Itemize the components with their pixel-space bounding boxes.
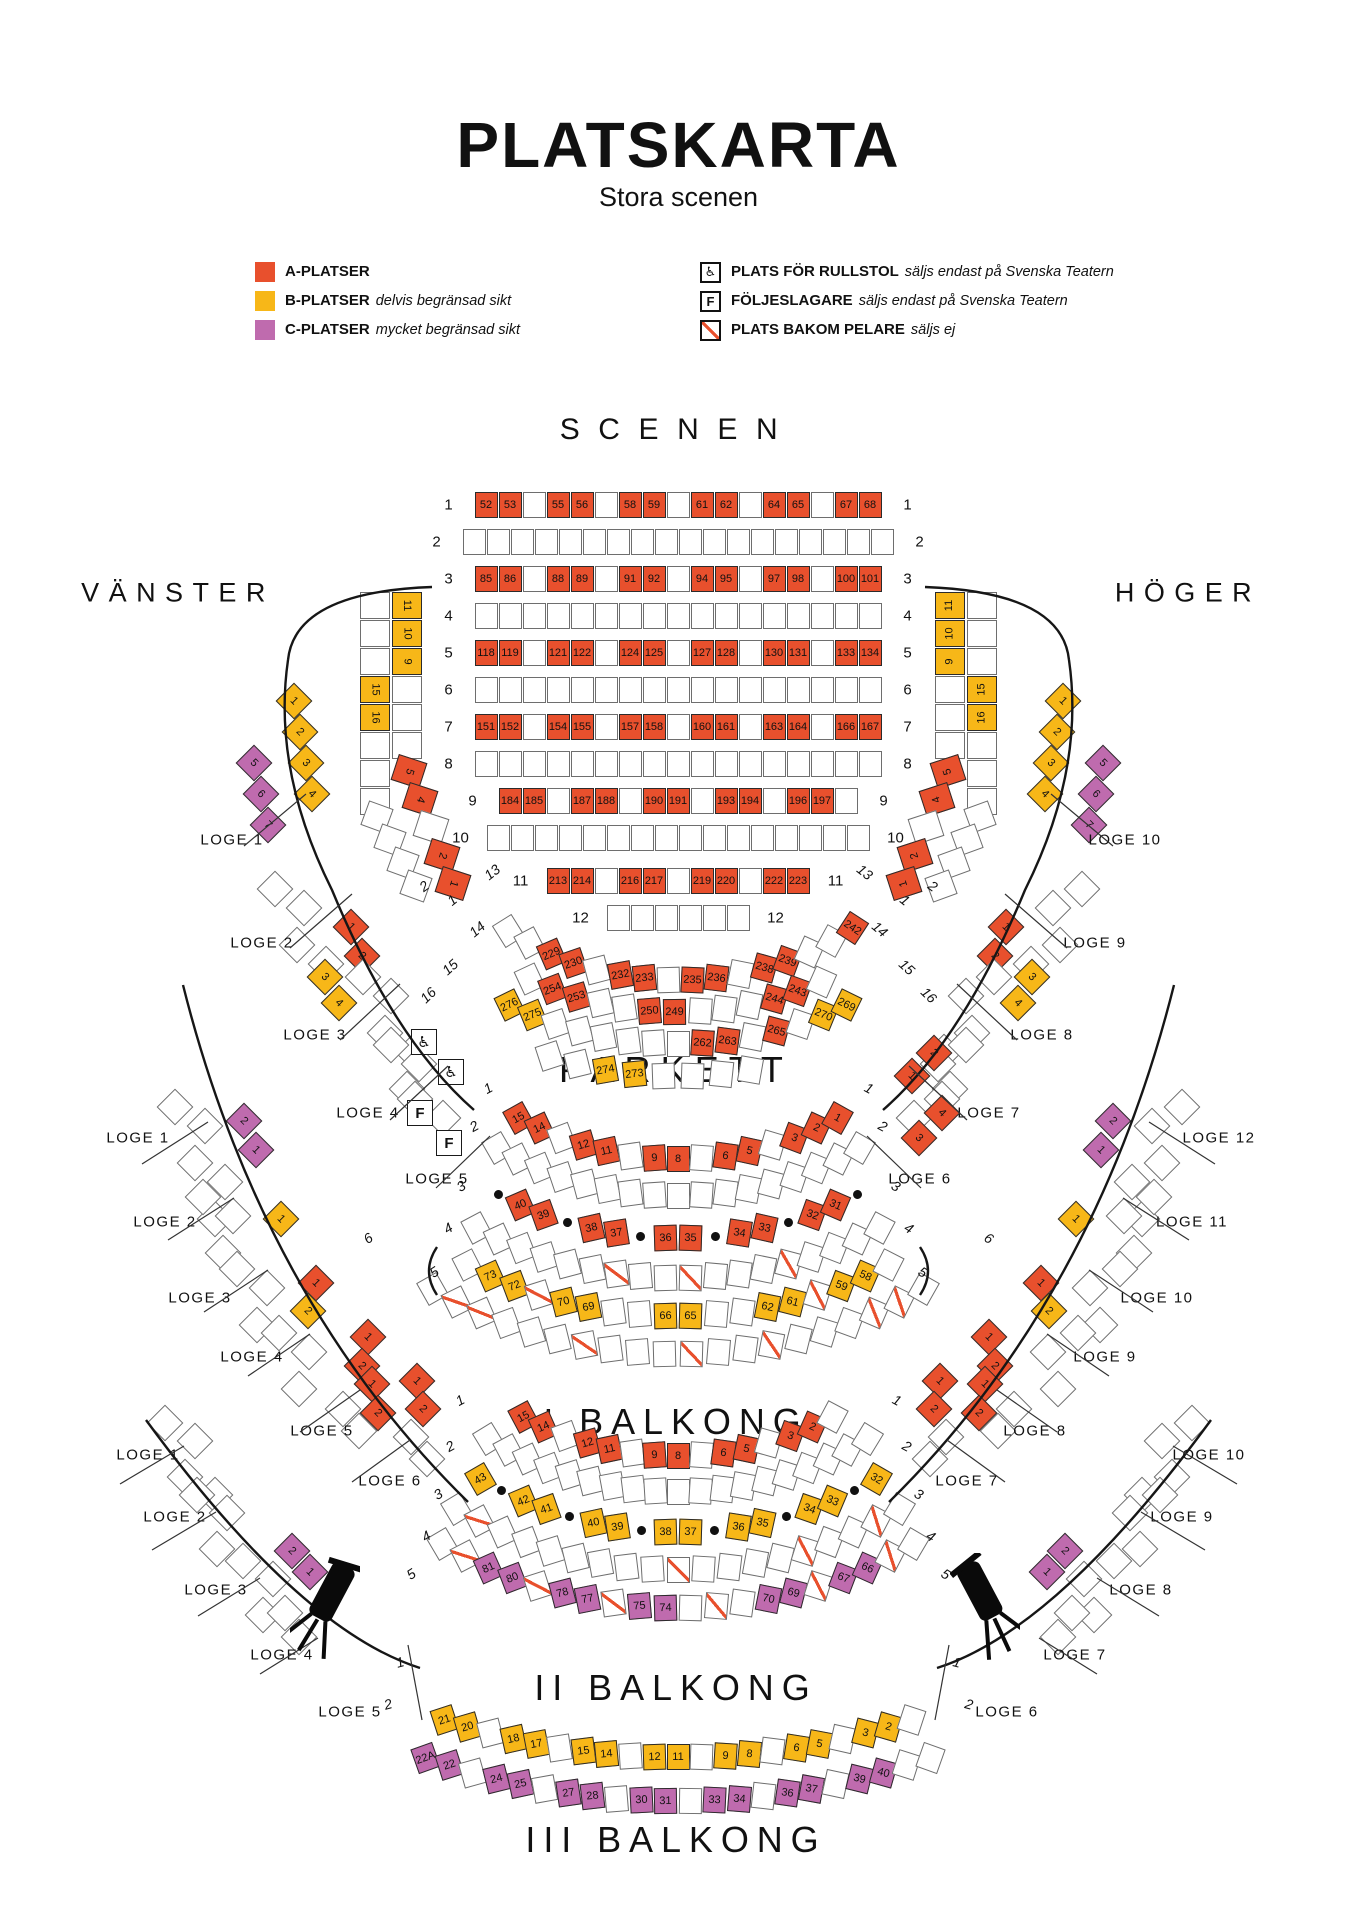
seat-118[interactable]: 118 xyxy=(475,640,498,666)
seat-61[interactable]: 61 xyxy=(691,492,714,518)
seat-16[interactable]: 16 xyxy=(967,704,997,731)
seat-unnumbered[interactable] xyxy=(631,905,654,931)
seat-unnumbered[interactable] xyxy=(643,603,666,629)
seat-100[interactable]: 100 xyxy=(835,566,858,592)
seat-unnumbered[interactable] xyxy=(896,1704,926,1736)
seat-unnumbered[interactable] xyxy=(1174,1405,1211,1442)
seat-125[interactable]: 125 xyxy=(643,640,666,666)
seat-unnumbered[interactable] xyxy=(935,676,965,703)
seat-273[interactable]: 273 xyxy=(622,1060,648,1088)
seat-unnumbered[interactable] xyxy=(703,825,726,851)
seat-unnumbered[interactable] xyxy=(360,592,390,619)
seat-unnumbered[interactable] xyxy=(546,1733,573,1762)
seat-2[interactable]: 2 xyxy=(1039,714,1076,751)
seat-32[interactable]: 32 xyxy=(860,1462,893,1496)
seat-unnumbered[interactable] xyxy=(679,825,702,851)
seat-unnumbered[interactable] xyxy=(655,529,678,555)
seat-33[interactable]: 33 xyxy=(703,1787,727,1814)
seat-86[interactable]: 86 xyxy=(499,566,522,592)
seat-197[interactable]: 197 xyxy=(811,788,834,814)
seat-157[interactable]: 157 xyxy=(619,714,642,740)
seat-11[interactable]: 11 xyxy=(935,592,965,619)
seat-1[interactable]: 1 xyxy=(350,1319,387,1356)
seat-unnumbered[interactable] xyxy=(737,1055,764,1085)
seat-unnumbered[interactable] xyxy=(1040,1371,1077,1408)
seat-unnumbered[interactable] xyxy=(667,566,690,592)
seat-65[interactable]: 65 xyxy=(679,1302,703,1329)
seat-31[interactable]: 31 xyxy=(654,1788,677,1814)
seat-unnumbered[interactable] xyxy=(667,1479,690,1505)
seat-unnumbered[interactable] xyxy=(784,1324,813,1355)
seat-34[interactable]: 34 xyxy=(727,1785,752,1813)
seat-128[interactable]: 128 xyxy=(715,640,738,666)
seat-1[interactable]: 1 xyxy=(276,683,313,720)
seat-6[interactable]: 6 xyxy=(243,776,280,813)
seat-unnumbered[interactable] xyxy=(976,959,1013,996)
seat-unnumbered[interactable] xyxy=(681,1062,705,1089)
seat-58[interactable]: 58 xyxy=(619,492,642,518)
seat-131[interactable]: 131 xyxy=(787,640,810,666)
seat-behind-pillar[interactable] xyxy=(603,1259,629,1288)
seat-unnumbered[interactable] xyxy=(835,788,858,814)
seat-unnumbered[interactable] xyxy=(667,492,690,518)
seat-unnumbered[interactable] xyxy=(578,1254,606,1284)
seat-11[interactable]: 11 xyxy=(392,592,422,619)
seat-67[interactable]: 67 xyxy=(828,1561,859,1593)
seat-unnumbered[interactable] xyxy=(360,648,390,675)
seat-unnumbered[interactable] xyxy=(595,868,618,894)
seat-219[interactable]: 219 xyxy=(691,868,714,894)
seat-unnumbered[interactable] xyxy=(811,751,834,777)
seat-unnumbered[interactable] xyxy=(619,751,642,777)
seat-unnumbered[interactable] xyxy=(667,751,690,777)
seat-11[interactable]: 11 xyxy=(595,1434,623,1464)
seat-unnumbered[interactable] xyxy=(859,751,882,777)
seat-unnumbered[interactable] xyxy=(571,677,594,703)
seat-unnumbered[interactable] xyxy=(360,732,390,759)
seat-24[interactable]: 24 xyxy=(482,1763,511,1794)
seat-unnumbered[interactable] xyxy=(1066,1561,1103,1598)
seat-unnumbered[interactable] xyxy=(604,1785,629,1813)
seat-unnumbered[interactable] xyxy=(750,1254,778,1284)
seat-unnumbered[interactable] xyxy=(463,529,486,555)
seat-unnumbered[interactable] xyxy=(775,529,798,555)
seat-unnumbered[interactable] xyxy=(345,959,382,996)
seat-unnumbered[interactable] xyxy=(702,1262,727,1290)
seat-unnumbered[interactable] xyxy=(595,566,618,592)
seat-unnumbered[interactable] xyxy=(641,1029,666,1056)
seat-unnumbered[interactable] xyxy=(595,677,618,703)
seat-unnumbered[interactable] xyxy=(177,1423,214,1460)
seat-behind-pillar[interactable] xyxy=(522,1570,552,1602)
seat-unnumbered[interactable] xyxy=(667,603,690,629)
seat-unnumbered[interactable] xyxy=(715,751,738,777)
seat-unnumbered[interactable] xyxy=(811,714,834,740)
seat-98[interactable]: 98 xyxy=(787,566,810,592)
seat-unnumbered[interactable] xyxy=(727,905,750,931)
seat-1[interactable]: 1 xyxy=(971,1319,1008,1356)
seat-unnumbered[interactable] xyxy=(598,1335,624,1364)
seat-34[interactable]: 34 xyxy=(727,1218,754,1247)
seat-6[interactable]: 6 xyxy=(783,1733,810,1762)
seat-unnumbered[interactable] xyxy=(847,529,870,555)
seat-151[interactable]: 151 xyxy=(475,714,498,740)
seat-unnumbered[interactable] xyxy=(534,1040,564,1072)
seat-unnumbered[interactable] xyxy=(640,1556,665,1583)
seat-unnumbered[interactable] xyxy=(487,529,510,555)
seat-75[interactable]: 75 xyxy=(626,1592,651,1620)
seat-95[interactable]: 95 xyxy=(715,566,738,592)
seat-unnumbered[interactable] xyxy=(967,592,997,619)
seat-53[interactable]: 53 xyxy=(499,492,522,518)
seat-unnumbered[interactable] xyxy=(1164,1089,1201,1126)
seat-unnumbered[interactable] xyxy=(618,1742,643,1769)
seat-unnumbered[interactable] xyxy=(967,760,997,787)
seat-unnumbered[interactable] xyxy=(583,529,606,555)
seat-unnumbered[interactable] xyxy=(703,529,726,555)
seat-152[interactable]: 152 xyxy=(499,714,522,740)
seat-133[interactable]: 133 xyxy=(835,640,858,666)
seat-unnumbered[interactable] xyxy=(688,1478,713,1505)
seat-unnumbered[interactable] xyxy=(523,677,546,703)
seat-39[interactable]: 39 xyxy=(604,1513,631,1542)
seat-78[interactable]: 78 xyxy=(548,1578,577,1609)
seat-unnumbered[interactable] xyxy=(617,1141,644,1170)
seat-unnumbered[interactable] xyxy=(571,603,594,629)
seat-unnumbered[interactable] xyxy=(691,677,714,703)
seat-unnumbered[interactable] xyxy=(706,1338,731,1366)
seat-unnumbered[interactable] xyxy=(967,620,997,647)
seat-5[interactable]: 5 xyxy=(1085,745,1122,782)
seat-119[interactable]: 119 xyxy=(499,640,522,666)
seat-unnumbered[interactable] xyxy=(835,1307,866,1339)
seat-222[interactable]: 222 xyxy=(763,868,786,894)
seat-companion[interactable]: F xyxy=(407,1100,433,1126)
seat-1[interactable]: 1 xyxy=(1045,683,1082,720)
seat-unnumbered[interactable] xyxy=(644,1478,669,1505)
seat-unnumbered[interactable] xyxy=(643,751,666,777)
seat-unnumbered[interactable] xyxy=(1030,1334,1067,1371)
seat-unnumbered[interactable] xyxy=(763,603,786,629)
seat-unnumbered[interactable] xyxy=(547,751,570,777)
seat-30[interactable]: 30 xyxy=(629,1787,653,1814)
seat-11[interactable]: 11 xyxy=(667,1744,690,1770)
seat-66[interactable]: 66 xyxy=(653,1302,677,1329)
seat-unnumbered[interactable] xyxy=(499,677,522,703)
seat-249[interactable]: 249 xyxy=(663,999,686,1025)
seat-15[interactable]: 15 xyxy=(570,1737,596,1766)
seat-unnumbered[interactable] xyxy=(1064,871,1101,908)
seat-1[interactable]: 1 xyxy=(1058,1201,1095,1238)
seat-unnumbered[interactable] xyxy=(799,529,822,555)
seat-unnumbered[interactable] xyxy=(511,529,534,555)
seat-unnumbered[interactable] xyxy=(618,1179,644,1208)
seat-6[interactable]: 6 xyxy=(712,1141,739,1170)
seat-unnumbered[interactable] xyxy=(736,990,764,1020)
seat-184[interactable]: 184 xyxy=(499,788,522,814)
seat-unnumbered[interactable] xyxy=(667,677,690,703)
seat-unnumbered[interactable] xyxy=(871,529,894,555)
seat-88[interactable]: 88 xyxy=(547,566,570,592)
seat-274[interactable]: 274 xyxy=(592,1055,619,1085)
seat-unnumbered[interactable] xyxy=(691,788,714,814)
seat-97[interactable]: 97 xyxy=(763,566,786,592)
seat-2[interactable]: 2 xyxy=(282,714,319,751)
seat-unnumbered[interactable] xyxy=(157,1089,194,1126)
seat-232[interactable]: 232 xyxy=(607,960,634,990)
seat-behind-pillar[interactable] xyxy=(704,1592,729,1620)
seat-8[interactable]: 8 xyxy=(667,1443,690,1469)
seat-unnumbered[interactable] xyxy=(587,1548,614,1578)
seat-17[interactable]: 17 xyxy=(523,1729,550,1759)
seat-unnumbered[interactable] xyxy=(499,603,522,629)
seat-85[interactable]: 85 xyxy=(475,566,498,592)
seat-37[interactable]: 37 xyxy=(798,1774,825,1804)
seat-unnumbered[interactable] xyxy=(667,714,690,740)
seat-unnumbered[interactable] xyxy=(751,529,774,555)
seat-38[interactable]: 38 xyxy=(654,1518,678,1545)
seat-16[interactable]: 16 xyxy=(360,704,390,731)
seat-unnumbered[interactable] xyxy=(653,1341,677,1368)
seat-unnumbered[interactable] xyxy=(739,603,762,629)
seat-8[interactable]: 8 xyxy=(667,1146,690,1172)
seat-233[interactable]: 233 xyxy=(632,964,658,992)
seat-unnumbered[interactable] xyxy=(805,965,837,998)
seat-unnumbered[interactable] xyxy=(499,751,522,777)
seat-unnumbered[interactable] xyxy=(360,620,390,647)
seat-unnumbered[interactable] xyxy=(187,1108,224,1145)
seat-unnumbered[interactable] xyxy=(627,1300,652,1328)
seat-41[interactable]: 41 xyxy=(531,1493,561,1525)
seat-5[interactable]: 5 xyxy=(930,754,967,789)
seat-unnumbered[interactable] xyxy=(535,529,558,555)
seat-unnumbered[interactable] xyxy=(799,825,822,851)
seat-unnumbered[interactable] xyxy=(535,825,558,851)
seat-unnumbered[interactable] xyxy=(563,1048,592,1079)
seat-10[interactable]: 10 xyxy=(935,620,965,647)
seat-37[interactable]: 37 xyxy=(678,1518,702,1545)
seat-5[interactable]: 5 xyxy=(236,745,273,782)
seat-262[interactable]: 262 xyxy=(691,1029,716,1056)
seat-unnumbered[interactable] xyxy=(559,529,582,555)
seat-unnumbered[interactable] xyxy=(523,640,546,666)
seat-behind-pillar[interactable] xyxy=(678,1264,702,1291)
seat-190[interactable]: 190 xyxy=(643,788,666,814)
seat-1[interactable]: 1 xyxy=(263,1201,300,1238)
seat-unnumbered[interactable] xyxy=(689,1181,714,1208)
seat-14[interactable]: 14 xyxy=(594,1740,619,1768)
seat-134[interactable]: 134 xyxy=(859,640,882,666)
seat-52[interactable]: 52 xyxy=(475,492,498,518)
seat-unnumbered[interactable] xyxy=(291,1334,328,1371)
seat-unnumbered[interactable] xyxy=(811,566,834,592)
seat-28[interactable]: 28 xyxy=(580,1782,606,1810)
seat-unnumbered[interactable] xyxy=(715,603,738,629)
seat-unnumbered[interactable] xyxy=(147,1405,184,1442)
seat-235[interactable]: 235 xyxy=(681,966,705,993)
seat-unnumbered[interactable] xyxy=(523,492,546,518)
seat-unnumbered[interactable] xyxy=(475,603,498,629)
seat-unnumbered[interactable] xyxy=(655,905,678,931)
seat-220[interactable]: 220 xyxy=(715,868,738,894)
seat-35[interactable]: 35 xyxy=(749,1508,777,1538)
seat-unnumbered[interactable] xyxy=(595,603,618,629)
seat-2[interactable]: 2 xyxy=(290,1293,327,1330)
seat-188[interactable]: 188 xyxy=(595,788,618,814)
seat-unnumbered[interactable] xyxy=(811,492,834,518)
seat-62[interactable]: 62 xyxy=(715,492,738,518)
seat-55[interactable]: 55 xyxy=(547,492,570,518)
seat-unnumbered[interactable] xyxy=(730,1589,756,1618)
seat-unnumbered[interactable] xyxy=(615,1026,641,1055)
seat-wheelchair[interactable]: ♿ xyxy=(438,1059,464,1085)
seat-2[interactable]: 2 xyxy=(1031,1293,1068,1330)
seat-193[interactable]: 193 xyxy=(715,788,738,814)
seat-3[interactable]: 3 xyxy=(1033,745,1070,782)
seat-unnumbered[interactable] xyxy=(847,825,870,851)
seat-213[interactable]: 213 xyxy=(547,868,570,894)
seat-unnumbered[interactable] xyxy=(511,825,534,851)
seat-unnumbered[interactable] xyxy=(691,751,714,777)
seat-unnumbered[interactable] xyxy=(583,825,606,851)
seat-unnumbered[interactable] xyxy=(590,1022,618,1052)
seat-67[interactable]: 67 xyxy=(835,492,858,518)
seat-77[interactable]: 77 xyxy=(574,1584,602,1614)
seat-124[interactable]: 124 xyxy=(619,640,642,666)
seat-unnumbered[interactable] xyxy=(763,751,786,777)
seat-unnumbered[interactable] xyxy=(652,1062,676,1089)
seat-25[interactable]: 25 xyxy=(506,1769,534,1799)
seat-unnumbered[interactable] xyxy=(692,1556,717,1583)
seat-36[interactable]: 36 xyxy=(654,1224,678,1251)
seat-unnumbered[interactable] xyxy=(908,810,945,845)
seat-unnumbered[interactable] xyxy=(475,751,498,777)
seat-unnumbered[interactable] xyxy=(571,751,594,777)
seat-unnumbered[interactable] xyxy=(607,825,630,851)
seat-39[interactable]: 39 xyxy=(529,1198,559,1230)
seat-127[interactable]: 127 xyxy=(691,640,714,666)
seat-unnumbered[interactable] xyxy=(727,825,750,851)
seat-unnumbered[interactable] xyxy=(835,677,858,703)
seat-8[interactable]: 8 xyxy=(736,1740,761,1768)
seat-217[interactable]: 217 xyxy=(643,868,666,894)
seat-behind-pillar[interactable] xyxy=(758,1330,785,1360)
seat-70[interactable]: 70 xyxy=(755,1584,783,1614)
seat-unnumbered[interactable] xyxy=(667,868,690,894)
seat-unnumbered[interactable] xyxy=(835,751,858,777)
seat-unnumbered[interactable] xyxy=(631,825,654,851)
seat-unnumbered[interactable] xyxy=(281,1371,318,1408)
seat-unnumbered[interactable] xyxy=(712,1179,738,1208)
seat-behind-pillar[interactable] xyxy=(680,1341,704,1368)
seat-unnumbered[interactable] xyxy=(523,566,546,592)
seat-unnumbered[interactable] xyxy=(547,677,570,703)
seat-unnumbered[interactable] xyxy=(739,640,762,666)
seat-unnumbered[interactable] xyxy=(741,1548,768,1578)
seat-unnumbered[interactable] xyxy=(691,603,714,629)
seat-161[interactable]: 161 xyxy=(715,714,738,740)
seat-36[interactable]: 36 xyxy=(725,1513,752,1542)
seat-64[interactable]: 64 xyxy=(763,492,786,518)
seat-187[interactable]: 187 xyxy=(571,788,594,814)
seat-unnumbered[interactable] xyxy=(717,1553,743,1582)
seat-70[interactable]: 70 xyxy=(549,1286,578,1317)
seat-33[interactable]: 33 xyxy=(817,1484,848,1517)
seat-wheelchair[interactable]: ♿ xyxy=(411,1029,437,1055)
seat-unnumbered[interactable] xyxy=(739,868,762,894)
seat-unnumbered[interactable] xyxy=(712,994,738,1023)
seat-158[interactable]: 158 xyxy=(643,714,666,740)
seat-9[interactable]: 9 xyxy=(392,648,422,675)
seat-unnumbered[interactable] xyxy=(517,1316,547,1348)
seat-unnumbered[interactable] xyxy=(811,603,834,629)
seat-unnumbered[interactable] xyxy=(655,825,678,851)
seat-4[interactable]: 4 xyxy=(294,776,331,813)
seat-160[interactable]: 160 xyxy=(691,714,714,740)
seat-unnumbered[interactable] xyxy=(688,998,713,1025)
seat-unnumbered[interactable] xyxy=(811,640,834,666)
seat-unnumbered[interactable] xyxy=(811,677,834,703)
seat-unnumbered[interactable] xyxy=(625,1338,650,1366)
seat-43[interactable]: 43 xyxy=(464,1462,497,1496)
seat-behind-pillar[interactable] xyxy=(600,1589,626,1618)
seat-121[interactable]: 121 xyxy=(547,640,570,666)
seat-89[interactable]: 89 xyxy=(571,566,594,592)
seat-unnumbered[interactable] xyxy=(607,529,630,555)
seat-155[interactable]: 155 xyxy=(571,714,594,740)
seat-unnumbered[interactable] xyxy=(709,1060,735,1088)
seat-unnumbered[interactable] xyxy=(523,603,546,629)
seat-unnumbered[interactable] xyxy=(715,677,738,703)
seat-unnumbered[interactable] xyxy=(373,978,410,1015)
seat-unnumbered[interactable] xyxy=(760,1737,786,1766)
seat-185[interactable]: 185 xyxy=(523,788,546,814)
seat-122[interactable]: 122 xyxy=(571,640,594,666)
seat-unnumbered[interactable] xyxy=(727,529,750,555)
seat-130[interactable]: 130 xyxy=(763,640,786,666)
seat-unnumbered[interactable] xyxy=(915,1742,945,1774)
seat-unnumbered[interactable] xyxy=(249,1270,286,1307)
seat-unnumbered[interactable] xyxy=(619,677,642,703)
seat-unnumbered[interactable] xyxy=(1072,1270,1109,1307)
seat-9[interactable]: 9 xyxy=(643,1441,668,1469)
seat-unnumbered[interactable] xyxy=(667,1183,690,1209)
seat-unnumbered[interactable] xyxy=(286,890,323,927)
seat-unnumbered[interactable] xyxy=(967,648,997,675)
seat-31[interactable]: 31 xyxy=(820,1189,851,1222)
seat-9[interactable]: 9 xyxy=(642,1144,667,1172)
seat-unnumbered[interactable] xyxy=(726,1259,752,1288)
seat-unnumbered[interactable] xyxy=(739,714,762,740)
seat-250[interactable]: 250 xyxy=(637,997,662,1025)
seat-unnumbered[interactable] xyxy=(689,1144,714,1172)
seat-unnumbered[interactable] xyxy=(690,1743,714,1770)
seat-unnumbered[interactable] xyxy=(679,529,702,555)
seat-unnumbered[interactable] xyxy=(601,1297,627,1326)
seat-unnumbered[interactable] xyxy=(739,751,762,777)
seat-unnumbered[interactable] xyxy=(595,640,618,666)
seat-223[interactable]: 223 xyxy=(787,868,810,894)
seat-unnumbered[interactable] xyxy=(835,603,858,629)
seat-4[interactable]: 4 xyxy=(1027,776,1064,813)
seat-92[interactable]: 92 xyxy=(643,566,666,592)
seat-unnumbered[interactable] xyxy=(547,603,570,629)
seat-unnumbered[interactable] xyxy=(607,905,630,931)
seat-unnumbered[interactable] xyxy=(619,788,642,814)
seat-unnumbered[interactable] xyxy=(704,1300,729,1328)
seat-unnumbered[interactable] xyxy=(967,732,997,759)
seat-unnumbered[interactable] xyxy=(547,788,570,814)
